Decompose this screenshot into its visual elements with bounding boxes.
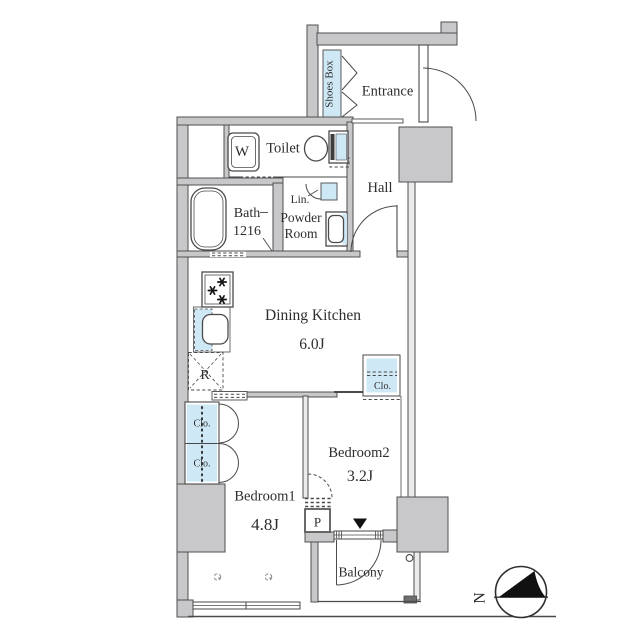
linen-label: Lin.: [291, 194, 310, 206]
sliding-door-bedroom1: [212, 392, 247, 401]
toilet-label: Toilet: [266, 141, 300, 157]
pillar-top-right: [399, 127, 452, 182]
wall-bedroom1-bedroom2-divider: [303, 396, 308, 498]
floor-marker-dot: [218, 577, 220, 579]
closet-door-arc: [219, 404, 239, 443]
entrance-step: [352, 119, 403, 123]
hall-area: Hall: [351, 180, 397, 252]
powder-room: Lin. Powder Room: [280, 183, 347, 246]
dining-kitchen-label: Dining Kitchen: [265, 307, 361, 324]
shoes-box-chevron-icon: [342, 92, 357, 117]
floor-marker-icon: [214, 574, 220, 580]
closet-bedroom2-label: Clo.: [374, 381, 391, 392]
bedroom1-label: Bedroom1: [234, 489, 295, 505]
shoes-box-chevron-icon: [342, 56, 357, 90]
wall-dk-top-right: [397, 251, 408, 257]
wall-bath-top: [177, 178, 283, 185]
powder-room-label-2: Room: [284, 226, 318, 241]
toilet-tank-bar: [331, 134, 335, 160]
wall-balcony-top-left: [305, 532, 334, 542]
wall-right-outer: [408, 182, 415, 497]
bath-room: Bath 1216: [191, 188, 272, 257]
floorplan-canvas: Shoes Box Entrance W Toilet Bath 1216: [0, 0, 640, 640]
bedroom2-size: 3.2J: [347, 468, 373, 485]
washer-label: W: [235, 144, 250, 160]
wall-top-horizontal: [317, 33, 457, 45]
bath-label: Bath: [234, 206, 260, 221]
washbasin-bowl: [329, 216, 344, 243]
pillar-bottom-right: [397, 497, 448, 552]
closet-door-arc: [219, 444, 239, 483]
bedroom2-label: Bedroom2: [328, 445, 389, 461]
bedroom2-door-hatch: [305, 499, 331, 507]
bath-leader-line: [263, 238, 272, 251]
wall-top-left-vertical: [307, 25, 318, 117]
bath-dim-label: 1216: [233, 224, 261, 239]
closet-left-top-label: Clo.: [194, 419, 211, 430]
entrance-area: Shoes Box Entrance: [323, 45, 476, 123]
floor-marker-dot: [269, 577, 271, 579]
refrigerator-label: R: [200, 368, 210, 383]
entrance-door: [419, 45, 428, 122]
toilet-bowl: [305, 136, 328, 161]
balcony-drain-icon: [406, 555, 413, 562]
vent-triangle-icon: [353, 519, 367, 530]
balcony-label: Balcony: [339, 565, 384, 580]
stove: [202, 272, 233, 307]
wall-balcony-right: [414, 552, 420, 600]
bedroom1-size: 4.8J: [251, 515, 279, 534]
compass: N: [472, 567, 549, 618]
sink-bowl: [203, 315, 229, 345]
wall-toilet-top: [177, 117, 353, 125]
bedroom2-area: Clo. Bedroom2 3.2J: [305, 355, 401, 507]
hall-label: Hall: [368, 180, 393, 196]
floor-marker-icon: [265, 574, 271, 580]
bathtub: [191, 188, 226, 250]
wall-balcony-left: [311, 542, 318, 602]
shoes-box-label: Shoes Box: [324, 60, 336, 108]
bedroom2-door-arc: [308, 474, 332, 498]
toilet-room: W Toilet: [228, 131, 349, 177]
entrance-door-arc: [423, 68, 476, 121]
dining-kitchen: R Dining Kitchen 6.0J: [189, 272, 366, 400]
pipe-space-label: P: [314, 515, 321, 530]
toilet-tank-lid: [336, 134, 347, 160]
wall-dk-top-left: [177, 251, 360, 257]
wall-bedroom2-bottom-right: [383, 530, 397, 542]
hall-door-arc: [351, 206, 397, 252]
closet-left-bottom-label: Clo.: [194, 459, 211, 470]
wall-bottom-left-corner: [177, 600, 193, 617]
wall-block-below-closets: [177, 484, 225, 552]
linen-closet: [321, 183, 337, 200]
powder-room-label-1: Powder: [280, 210, 322, 225]
dining-kitchen-size: 6.0J: [299, 336, 324, 353]
wall-dk-bedroom-divider: [247, 392, 337, 397]
compass-north-label: N: [472, 592, 489, 604]
entrance-label: Entrance: [362, 84, 414, 100]
